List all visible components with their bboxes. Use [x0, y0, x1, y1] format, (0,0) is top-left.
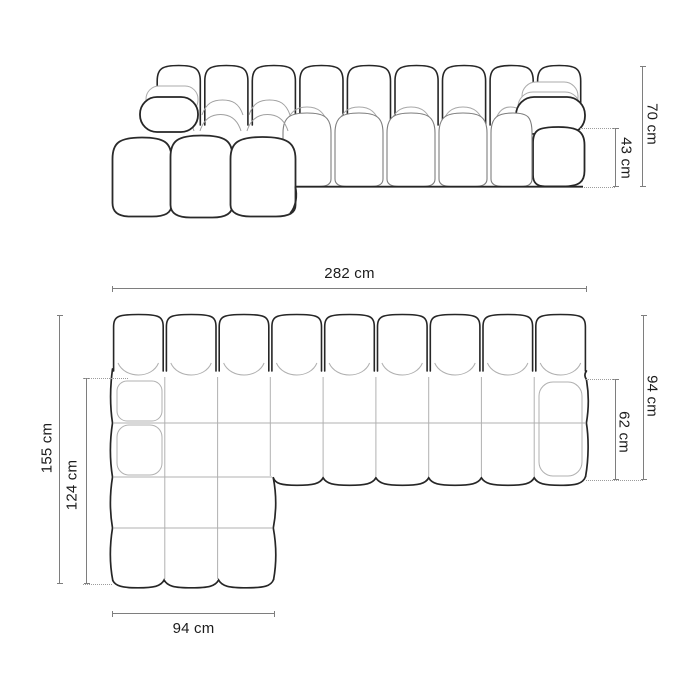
extension-line-front-edge: [586, 480, 643, 481]
extension-line-seat-height-top: [580, 128, 615, 129]
dim-label-total-depth: 155 cm: [39, 423, 56, 473]
dim-line-total-width: [112, 288, 587, 289]
dim-label-body-depth: 94 cm: [644, 375, 661, 417]
plan-inner-seams: [113, 363, 586, 579]
front-chaise-cushions: [113, 136, 297, 218]
extension-line-base: [584, 187, 615, 188]
dim-line-total-depth: [59, 315, 60, 584]
dim-line-seat-height: [615, 128, 616, 187]
dim-line-chaise-width: [112, 613, 275, 614]
dim-label-total-width: 282 cm: [112, 265, 587, 282]
extension-line-chaise-bottom: [83, 584, 112, 585]
dim-line-chaise-depth: [86, 378, 87, 584]
sofa-top-view: [95, 305, 600, 595]
dim-label-seat-height: 43 cm: [618, 137, 635, 179]
front-right-corner-cushion: [533, 127, 585, 186]
plan-outline: [110, 369, 588, 588]
sofa-front-elevation: [95, 55, 600, 230]
front-left-armrest: [140, 86, 198, 132]
plan-back-cushions: [114, 315, 586, 372]
sofa-dimension-diagram: 70 cm 43 cm 282 cm 94 cm 62 cm 155 cm 12…: [0, 0, 700, 700]
dim-label-chaise-depth: 124 cm: [64, 460, 81, 510]
extension-line-chaise-depth-top: [83, 378, 128, 379]
dim-label-chaise-width: 94 cm: [112, 620, 275, 637]
dim-label-total-height: 70 cm: [644, 103, 661, 145]
dim-label-seat-depth: 62 cm: [616, 411, 633, 453]
front-seat-cushions: [283, 113, 532, 187]
extension-line-seat-depth-top: [586, 379, 615, 380]
